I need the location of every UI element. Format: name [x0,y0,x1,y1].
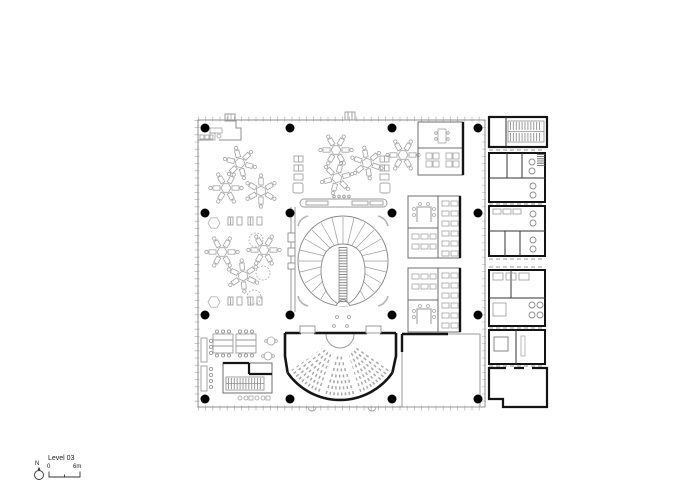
breakout-rooms-bottom-left [201,330,277,400]
central-spiral-stair [288,195,388,318]
open-office-desk-clusters [205,134,420,298]
meeting-room-top-right [418,122,463,175]
auditorium [285,325,396,411]
large-room-bottom-right [402,334,480,407]
service-core-right [489,117,547,407]
floor-plan-page: N Level 03 0 6m [0,0,700,494]
meeting-rooms-right [408,196,460,332]
floor-plan-drawing [0,0,700,494]
